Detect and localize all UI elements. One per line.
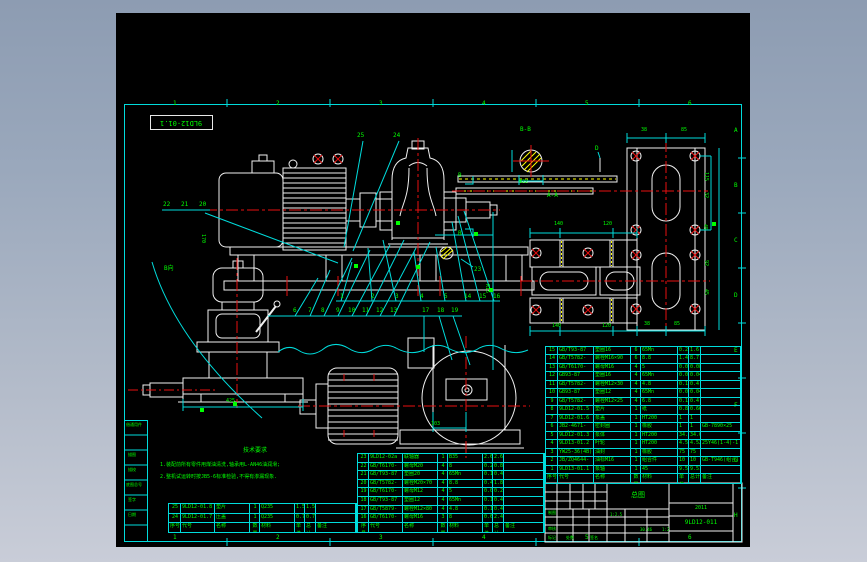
titleblock-field: 签名 — [590, 536, 598, 540]
table-cell: 4 — [631, 398, 641, 406]
dimension-text: 115 — [703, 172, 708, 181]
table-row: 89LD12-01.5垫片1纸0.840.66 — [546, 406, 741, 414]
table-cell: 备注 — [504, 523, 544, 533]
table-cell: 0.4 — [689, 398, 701, 406]
table-cell: 1 — [250, 504, 260, 514]
table-cell: 单件 — [295, 523, 305, 533]
table-cell: 0.04 — [689, 389, 701, 397]
table-cell: 21 — [358, 471, 369, 480]
table-cell — [701, 372, 741, 380]
table-cell: 20 — [358, 480, 369, 489]
balloon-number: 16 — [493, 294, 500, 300]
table-cell — [504, 488, 544, 497]
table-cell: 0.4 — [493, 506, 504, 515]
dimension-text: 170 — [200, 234, 205, 243]
table-cell: 9LD12-01.8 — [181, 504, 215, 514]
table-cell: 0.2 — [678, 347, 689, 355]
section-label: A-A — [547, 193, 558, 199]
dimension-text: 140 — [554, 222, 563, 227]
table-cell: 4 — [546, 440, 558, 448]
table-cell: 总计 — [493, 523, 504, 533]
dimension-text: 92 — [703, 260, 708, 266]
table-cell: 垫片 — [594, 406, 631, 414]
table-cell: 1.5 — [295, 504, 305, 514]
table-row: 9GB/T5782-2000螺栓M12×2546.80.10.4 — [546, 398, 741, 406]
section-label: B向 — [164, 266, 174, 272]
table-cell: GB/T5879-2000 — [369, 506, 403, 515]
table-cell: 12 — [546, 372, 558, 380]
section-label: D — [595, 146, 599, 152]
table-cell: 10 — [546, 389, 558, 397]
table-cell: 25Y46(1-4)-1 — [701, 440, 741, 448]
table-row: 79LD12-01.6泵盖1HT20011 — [546, 415, 741, 423]
table-cell: 65Mn — [641, 372, 678, 380]
table-cell: 1 — [631, 432, 641, 440]
zone-letter-right: D — [734, 293, 738, 299]
table-row: 14GB/T5782-2000螺栓M16×9068.81.458.7 — [546, 355, 741, 363]
table-cell: 9LD12-01.6 — [558, 415, 594, 423]
titleblock-field: 处数 — [566, 536, 574, 540]
table-cell: 65Mn — [448, 497, 483, 506]
table-cell: 名称 — [215, 523, 250, 533]
table-cell: GB/T93-87 — [369, 471, 403, 480]
table-cell — [504, 463, 544, 472]
table-cell — [504, 480, 544, 489]
bom-header-left: 序号代号名称数量材料单件总计备注 — [357, 522, 545, 533]
table-cell — [504, 471, 544, 480]
table-cell: 0.46 — [483, 480, 493, 489]
zone-number-bottom: 3 — [379, 535, 383, 541]
titleblock-note: 2011 — [669, 505, 733, 511]
table-cell: 泵盖 — [594, 415, 631, 423]
balloon-number: 9 — [336, 308, 340, 314]
table-cell: 9LD12-01.5 — [558, 406, 594, 414]
table-cell: 0.1 — [483, 506, 493, 515]
table-cell: 13 — [546, 364, 558, 372]
balloon-number: 5 — [444, 294, 448, 300]
balloon-number: 11 — [362, 308, 369, 314]
balloon-number: 12 — [376, 308, 383, 314]
table-cell: 34.0 — [678, 432, 689, 440]
table-cell: 4 — [438, 488, 448, 497]
table-cell: 序号 — [169, 523, 181, 533]
table-cell: 17 — [358, 506, 369, 515]
dimension-text: 103 — [431, 422, 440, 427]
table-cell: 6 — [631, 355, 641, 363]
table-cell: 7 — [546, 415, 558, 423]
dimension-text: 38 — [641, 128, 647, 133]
table-cell: HT200 — [641, 432, 678, 440]
table-cell: 75 — [678, 449, 689, 457]
balloon-number: 22 — [163, 202, 170, 208]
table-cell: 单件 — [678, 474, 689, 484]
table-cell: 8.8 — [641, 355, 678, 363]
table-cell: 备注 — [316, 523, 356, 533]
reference-number: 9LD12-01.1 — [160, 119, 202, 127]
titleblock-field: 制图 — [548, 511, 556, 515]
table-cell: 总计 — [689, 474, 701, 484]
table-row: 59LD12-01.3泵体1HT20034.034.0 — [546, 432, 741, 440]
table-cell — [701, 381, 741, 389]
table-cell: 1 — [678, 423, 689, 431]
reference-number-box: 9LD12-01.1 — [150, 115, 213, 130]
table-cell: GB/T5782-2000 — [369, 480, 403, 489]
table-cell: 0.8 — [493, 463, 504, 472]
table-cell — [701, 415, 741, 423]
table-cell — [701, 347, 741, 355]
table-cell: 8.7 — [689, 355, 701, 363]
table-cell: 垫圈12 — [403, 497, 438, 506]
zone-number-top: 1 — [173, 101, 177, 107]
table-cell: GB/T6170-2000 — [369, 463, 403, 472]
table-cell: 10 — [678, 457, 689, 465]
table-cell: 螺母M12 — [403, 488, 438, 497]
section-label: B — [458, 173, 462, 179]
margin-field-label: 描图 — [128, 453, 136, 457]
balloon-number: 23 — [474, 267, 481, 273]
table-cell: 4 — [438, 506, 448, 515]
table-cell: 组合件 — [641, 457, 678, 465]
table-row: 22GB/T6170-2000螺母M20480.20.8 — [358, 463, 544, 472]
table-cell: 0.1 — [483, 471, 493, 480]
table-cell: JB2-4671-F(橡胶) — [558, 423, 594, 431]
table-cell: 1 — [631, 440, 641, 448]
table-cell: GB/T93-87 — [369, 497, 403, 506]
table-cell: 4 — [438, 480, 448, 489]
table-cell: 10 — [689, 457, 701, 465]
balloon-number: 3 — [395, 294, 399, 300]
table-cell: 65Mn — [448, 471, 483, 480]
table-cell: 0.84 — [678, 406, 689, 414]
table-cell: 0.4 — [493, 497, 504, 506]
margin-field-label: 底图总号 — [126, 483, 142, 487]
table-cell: 0.01 — [678, 372, 689, 380]
balloon-number: 2 — [371, 294, 375, 300]
balloon-number: 24 — [393, 133, 400, 139]
table-row: 19GB/T6170-2000螺母M12450.070.28 — [358, 488, 544, 497]
table-cell: 橡胶 — [641, 423, 678, 431]
table-row: 17GB/T5879-2000螺栓M12×8044.80.10.4 — [358, 506, 544, 515]
table-cell: GB93-87 — [558, 372, 594, 380]
table-cell: GB/T93-87 — [558, 347, 594, 355]
table-cell: 1 — [678, 415, 689, 423]
table-cell: 螺栓M12×25 — [594, 398, 631, 406]
titleblock-field: 30.46 — [640, 528, 652, 532]
balloon-number: 4 — [420, 294, 424, 300]
zone-number-top: 5 — [585, 101, 589, 107]
table-cell: 18 — [358, 497, 369, 506]
table-row: 12GB93-87垫圈16465Mn0.010.04 — [546, 372, 741, 380]
margin-field-label: 签字 — [128, 498, 136, 502]
table-cell: 2.63 — [483, 454, 493, 463]
table-cell: 1 — [631, 457, 641, 465]
table-cell — [504, 506, 544, 515]
table-cell: 0.66 — [689, 406, 701, 414]
table-cell: 5 — [546, 432, 558, 440]
table-row: 259LD12-01.8垫片1Q2351.51.5 — [169, 504, 356, 514]
balloon-number: 25 — [357, 133, 364, 139]
table-cell: 单件 — [483, 523, 493, 533]
table-cell: 1.45 — [678, 355, 689, 363]
table-cell: HT200 — [641, 440, 678, 448]
table-cell: 代号 — [181, 523, 215, 533]
table-cell: 垫片 — [215, 504, 250, 514]
table-cell: 垫圈16 — [594, 372, 631, 380]
table-cell — [701, 389, 741, 397]
table-cell: Q235 — [260, 504, 295, 514]
table-cell: 0.2 — [483, 463, 493, 472]
table-cell: 泵体 — [594, 432, 631, 440]
table-cell: 垫圈20 — [403, 471, 438, 480]
table-cell: 5 — [641, 364, 678, 372]
table-cell: 1.6 — [689, 347, 701, 355]
tech-requirements-title: 技术要求 — [243, 445, 267, 454]
section-label: B-B — [520, 127, 531, 133]
table-cell: 螺母M20 — [403, 463, 438, 472]
table-cell: 2 — [546, 457, 558, 465]
table-cell: 4 — [631, 381, 641, 389]
table-cell: 垫圈12 — [594, 389, 631, 397]
table-cell: GB-7890×25 — [701, 423, 741, 431]
table-cell: 8.8 — [448, 480, 483, 489]
table-cell: 9LD12-02a — [369, 454, 403, 463]
balloon-number: 1 — [340, 294, 344, 300]
zone-number-top: 6 — [688, 101, 692, 107]
table-cell: 名称 — [403, 523, 438, 533]
table-cell: 联轴器 — [403, 454, 438, 463]
tech-requirement-line: 2.整机试运转时按JB5-6标准检验,不得有渗漏现象. — [160, 473, 277, 480]
zone-number-bottom: 2 — [276, 535, 280, 541]
zone-number-top: 2 — [276, 101, 280, 107]
table-row: 18GB/T93-87垫圈12465Mn0.10.4 — [358, 497, 544, 506]
table-cell: GB/T5782-2000 — [558, 355, 594, 363]
table-row: 239LD12-02a联轴器1B352.632.63 — [358, 454, 544, 463]
table-cell: 1 — [438, 454, 448, 463]
balloon-number: 13 — [390, 308, 397, 314]
table-cell: 0.1 — [678, 398, 689, 406]
table-cell: 代号 — [369, 523, 403, 533]
zone-letter-right: B — [734, 183, 738, 189]
table-row: 3YW25-36(4B)油封1橡胶7575 — [546, 449, 741, 457]
table-row: 6JB2-4671-F(橡胶)密封圈1橡胶11GB-7890×25 — [546, 423, 741, 431]
cad-viewer-window: { "colors":{"background_frame":"#9aa8bc"… — [0, 0, 867, 562]
table-cell: 序号 — [358, 523, 369, 533]
titleblock-drawing-number: 9LD12-011 — [669, 519, 733, 526]
zone-number-bottom: 4 — [482, 535, 486, 541]
balloon-number: 14 — [464, 294, 471, 300]
table-cell: 4 — [631, 389, 641, 397]
table-cell: 材料 — [448, 523, 483, 533]
table-cell: 4.8 — [641, 381, 678, 389]
dimension-text: 425 — [226, 399, 235, 404]
table-cell: 8 — [546, 406, 558, 414]
table-cell: 纸 — [641, 406, 678, 414]
zone-number-bottom: 6 — [688, 535, 692, 541]
table-cell: 15 — [546, 347, 558, 355]
dimension-text: 45 — [703, 289, 708, 295]
table-cell: 1 — [631, 449, 641, 457]
titleblock-field: 审核 — [548, 527, 556, 531]
balloon-number: 6 — [293, 308, 297, 314]
table-cell: 5 — [448, 488, 483, 497]
table-cell — [701, 432, 741, 440]
table-cell: 4.52 — [689, 440, 701, 448]
table-cell: 8 — [448, 463, 483, 472]
table-cell — [701, 398, 741, 406]
table-cell: 总计 — [305, 523, 316, 533]
table-cell: 4.52 — [678, 440, 689, 448]
dimension-text: 85 — [674, 322, 680, 327]
dimension-text: 45 — [702, 224, 707, 230]
zone-number-top: 4 — [482, 101, 486, 107]
table-cell: 材料 — [641, 474, 678, 484]
tech-requirement-line: 1.装配前所有零件用煤油清洗,轴承用L-AN46油润滑; — [160, 461, 280, 468]
table-cell: 螺栓M20×70 — [403, 480, 438, 489]
table-cell: 19 — [358, 488, 369, 497]
bom-table-left: 239LD12-02a联轴器1B352.632.6322GB/T6170-200… — [357, 453, 545, 523]
table-cell: 9 — [546, 398, 558, 406]
table-cell: 23 — [358, 454, 369, 463]
table-row: 13GB/T6170-2000螺母M16450.020.08 — [546, 364, 741, 372]
table-cell: 22 — [358, 463, 369, 472]
table-row: 20GB/T5782-2000螺栓M20×7048.80.461.84 — [358, 480, 544, 489]
table-cell — [316, 504, 356, 514]
balloon-number: 8 — [321, 308, 325, 314]
table-row: 序号代号名称数量材料单件总计备注 — [358, 523, 544, 533]
balloon-number: 17 — [422, 308, 429, 314]
bom-table-extra: 259LD12-01.8垫片1Q2351.51.5249LD12-01.7压盖1… — [168, 503, 357, 523]
table-cell: B35 — [448, 454, 483, 463]
table-row: 序号代号名称数量材料单件总计备注 — [546, 474, 741, 484]
table-cell: HT200 — [641, 415, 678, 423]
titleblock-title: 总图 — [607, 490, 669, 500]
table-cell: 橡胶 — [641, 449, 678, 457]
dimension-text: 38 — [644, 322, 650, 327]
balloon-number: 18 — [437, 308, 444, 314]
table-cell: 名称 — [594, 474, 631, 484]
table-cell — [701, 355, 741, 363]
table-cell: 1 — [631, 406, 641, 414]
table-cell: 0.1 — [483, 497, 493, 506]
table-cell: 1 — [689, 423, 701, 431]
section-label: B — [458, 231, 462, 237]
table-cell: 序号 — [546, 474, 558, 484]
table-cell: 0.4 — [689, 381, 701, 389]
table-cell: 25 — [169, 504, 181, 514]
table-cell: 1.5 — [305, 504, 316, 514]
zone-letter-right: H — [734, 513, 738, 519]
table-cell: 数量 — [250, 523, 260, 533]
table-cell: 材料 — [260, 523, 295, 533]
table-cell: GB/T6170-2000 — [369, 488, 403, 497]
balloon-number: 10 — [348, 308, 355, 314]
table-cell: 油封 — [594, 449, 631, 457]
table-cell: 数量 — [631, 474, 641, 484]
table-cell — [504, 497, 544, 506]
table-cell: 4 — [438, 497, 448, 506]
dimension-text: 32 — [703, 192, 708, 198]
table-cell: 螺栓M12×80 — [403, 506, 438, 515]
table-cell — [701, 449, 741, 457]
table-cell: 数量 — [438, 523, 448, 533]
table-row: 11GB/T5782-2000螺栓M12×3044.80.10.4 — [546, 381, 741, 389]
table-row: 21GB/T93-87垫圈20465Mn0.10.4 — [358, 471, 544, 480]
table-cell: 0.08 — [689, 364, 701, 372]
titleblock-field: 1:2 — [662, 528, 669, 532]
margin-field-label: 借通用件 — [126, 423, 142, 427]
dimension-text: 140 — [552, 324, 561, 329]
table-row: 2JB/ZQ4644-74油标M161组合件1010GB-T946(组合) — [546, 457, 741, 465]
zone-letter-right: C — [734, 238, 738, 244]
table-cell: 4 — [631, 364, 641, 372]
table-cell: 4 — [438, 471, 448, 480]
table-cell: 0.04 — [689, 372, 701, 380]
table-cell: 螺栓M12×30 — [594, 381, 631, 389]
table-cell: YW25-36(4B) — [558, 449, 594, 457]
zone-number-bottom: 1 — [173, 535, 177, 541]
table-cell: 4.8 — [448, 506, 483, 515]
dimension-text: R15 — [484, 284, 489, 293]
dimension-text: Φ22 — [519, 180, 528, 185]
table-cell: 0.1 — [678, 381, 689, 389]
table-cell: 75 — [689, 449, 701, 457]
table-cell: 密封圈 — [594, 423, 631, 431]
table-cell: 14 — [546, 355, 558, 363]
margin-field-label: 日期 — [128, 513, 136, 517]
table-cell: 叶轮 — [594, 440, 631, 448]
table-cell: GB/T5782-2000 — [558, 398, 594, 406]
table-cell: JB/ZQ4644-74 — [558, 457, 594, 465]
table-cell: 65Mn — [641, 347, 678, 355]
balloon-number: 19 — [451, 308, 458, 314]
margin-field-label: 描校 — [128, 468, 136, 472]
table-cell: 0.01 — [678, 389, 689, 397]
table-cell: 34.0 — [689, 432, 701, 440]
table-cell — [701, 406, 741, 414]
balloon-number: 15 — [479, 294, 486, 300]
table-cell: 1 — [631, 423, 641, 431]
table-cell: 螺母M16 — [594, 364, 631, 372]
table-cell: GB93-87 — [558, 389, 594, 397]
table-cell: 代号 — [558, 474, 594, 484]
table-cell: 油标M16 — [594, 457, 631, 465]
table-cell: 6 — [631, 347, 641, 355]
table-cell: GB/T6170-2000 — [558, 364, 594, 372]
table-cell: 2.63 — [493, 454, 504, 463]
zone-letter-right: A — [734, 128, 738, 134]
bom-header-extra: 序号代号名称数量材料单件总计备注 — [168, 522, 357, 533]
titleblock-field: 标记 — [548, 536, 556, 540]
table-cell: 备注 — [701, 474, 741, 484]
table-cell: 65Mn — [641, 389, 678, 397]
table-row: 15GB/T93-87垫圈16665Mn0.21.6 — [546, 347, 741, 355]
table-cell: GB-T946(组合) — [701, 457, 741, 465]
zone-number-bottom: 5 — [585, 535, 589, 541]
table-cell — [701, 364, 741, 372]
bom-header-right: 序号代号名称数量材料单件总计备注 — [545, 473, 742, 484]
table-cell: 6.8 — [641, 398, 678, 406]
table-cell — [504, 454, 544, 463]
titleblock-field: 1:2.5 — [610, 513, 622, 517]
table-cell: 垫圈16 — [594, 347, 631, 355]
table-cell: 11 — [546, 381, 558, 389]
table-cell: 6 — [546, 423, 558, 431]
table-row: 序号代号名称数量材料单件总计备注 — [169, 523, 356, 533]
table-row: 10GB93-87垫圈12465Mn0.010.04 — [546, 389, 741, 397]
dimension-text: 85 — [681, 128, 687, 133]
table-cell: 9LD13-01.2 — [558, 440, 594, 448]
table-cell: 0.02 — [678, 364, 689, 372]
